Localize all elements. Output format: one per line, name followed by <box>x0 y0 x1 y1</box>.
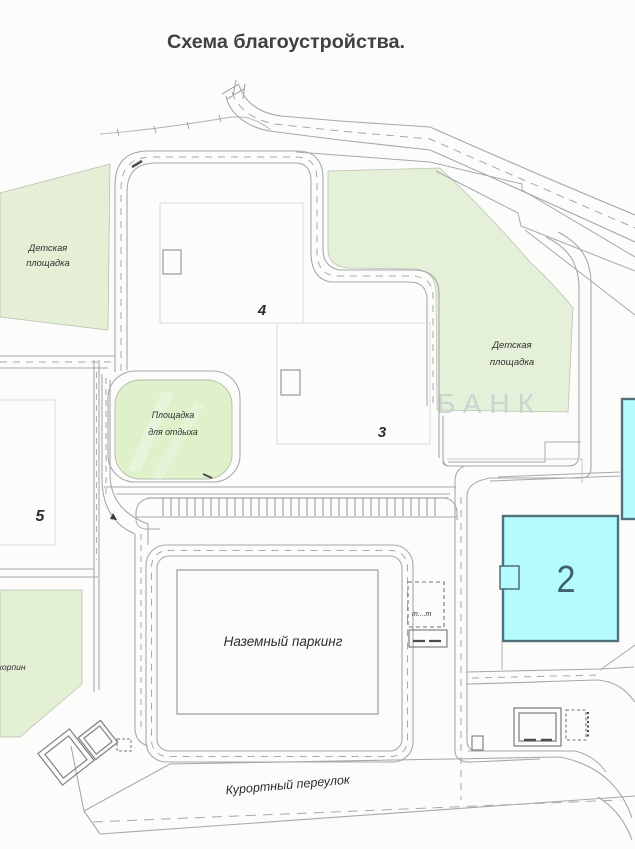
svg-text:Детская: Детская <box>28 243 67 253</box>
svg-text:Площадка: Площадка <box>152 410 195 420</box>
svg-text:БАНК: БАНК <box>437 388 542 419</box>
svg-text:для отдыха: для отдыха <box>148 427 198 437</box>
svg-text:Детская: Детская <box>491 340 531 351</box>
svg-text:4: 4 <box>257 302 267 319</box>
svg-text:Схема благоустройства.: Схема благоустройства. <box>167 31 405 53</box>
svg-text:площадка: площадка <box>490 357 534 368</box>
svg-text:т....т: т....т <box>412 611 432 618</box>
svg-text:Наземный паркинг: Наземный паркинг <box>224 634 343 649</box>
svg-text:2: 2 <box>557 559 576 601</box>
svg-text:корпин: корпин <box>0 662 26 672</box>
svg-text:площадка: площадка <box>26 258 69 268</box>
svg-text:5: 5 <box>36 508 46 525</box>
svg-text:3: 3 <box>378 424 387 441</box>
